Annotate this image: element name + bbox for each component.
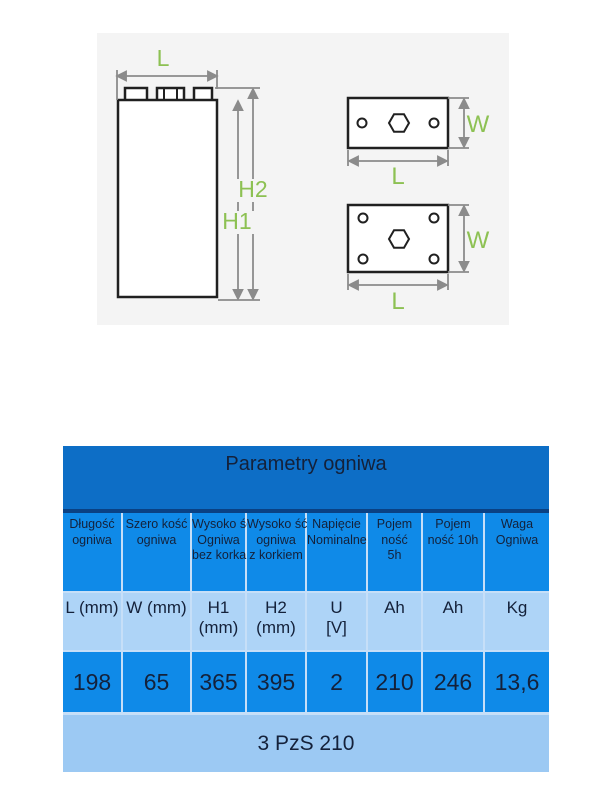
length-label: L — [157, 45, 170, 71]
header-cell: Wysoko ść ogniwa z korkiem — [247, 513, 305, 591]
unit-cell: U [V] — [307, 593, 366, 650]
header-cell: Pojem ność 10h — [423, 513, 483, 591]
plate-top-view-5-hole — [348, 205, 448, 272]
plate2-width-label: W — [467, 227, 490, 254]
hole-icon — [430, 255, 439, 264]
unit-cell: L (mm) — [63, 593, 121, 650]
unit-cell: Kg — [485, 593, 549, 650]
value-cell: 395 — [247, 652, 305, 712]
hole-icon — [359, 214, 368, 223]
height-body-label: H1 — [222, 208, 251, 234]
unit-cell: Ah — [423, 593, 483, 650]
battery-front-view — [118, 88, 217, 297]
plate1-width-label: W — [467, 111, 490, 138]
battery-body — [118, 100, 217, 297]
value-cell: 210 — [368, 652, 421, 712]
hole-icon — [359, 255, 368, 264]
table-header-row: Długość ogniwa Szero kość ogniwa Wysoko … — [63, 513, 549, 591]
cell-parameters-table: Parametry ogniwa Długość ogniwa Szero ko… — [63, 446, 549, 772]
height-total-label: H2 — [238, 176, 267, 202]
hole-icon — [430, 119, 439, 128]
value-cell: 365 — [192, 652, 245, 712]
plate2-length-label: L — [391, 288, 404, 315]
unit-cell: H2 (mm) — [247, 593, 305, 650]
plate-top-view-3-hole — [348, 98, 448, 148]
diagram-svg: L H2 H1 — [97, 33, 509, 325]
battery-dimension-diagram: L H2 H1 — [97, 33, 509, 325]
table-units-row: L (mm) W (mm) H1 (mm) H2 (mm) U [V] Ah A… — [63, 593, 549, 650]
value-cell: 13,6 — [485, 652, 549, 712]
plate1-length-label: L — [391, 163, 404, 190]
hole-icon — [358, 119, 367, 128]
unit-cell: H1 (mm) — [192, 593, 245, 650]
table-values-row: 198 65 365 395 2 210 246 13,6 — [63, 652, 549, 712]
header-cell: Napięcie Nominalne — [307, 513, 366, 591]
header-cell: Wysoko ść Ogniwa bez korka — [192, 513, 245, 591]
value-cell: 2 — [307, 652, 366, 712]
table-title: Parametry ogniwa — [63, 446, 549, 513]
header-cell: Szero kość ogniwa — [123, 513, 190, 591]
hex-terminal-icon — [389, 114, 409, 131]
unit-cell: Ah — [368, 593, 421, 650]
hole-icon — [430, 214, 439, 223]
page: L H2 H1 — [0, 0, 600, 800]
value-cell: 65 — [123, 652, 190, 712]
header-cell: Pojem ność 5h — [368, 513, 421, 591]
header-cell: Długość ogniwa — [63, 513, 121, 591]
header-cell: Waga Ogniwa — [485, 513, 549, 591]
value-cell: 246 — [423, 652, 483, 712]
value-cell: 198 — [63, 652, 121, 712]
hex-terminal-icon — [389, 230, 409, 247]
table-footer-model: 3 PzS 210 — [63, 715, 549, 772]
unit-cell: W (mm) — [123, 593, 190, 650]
